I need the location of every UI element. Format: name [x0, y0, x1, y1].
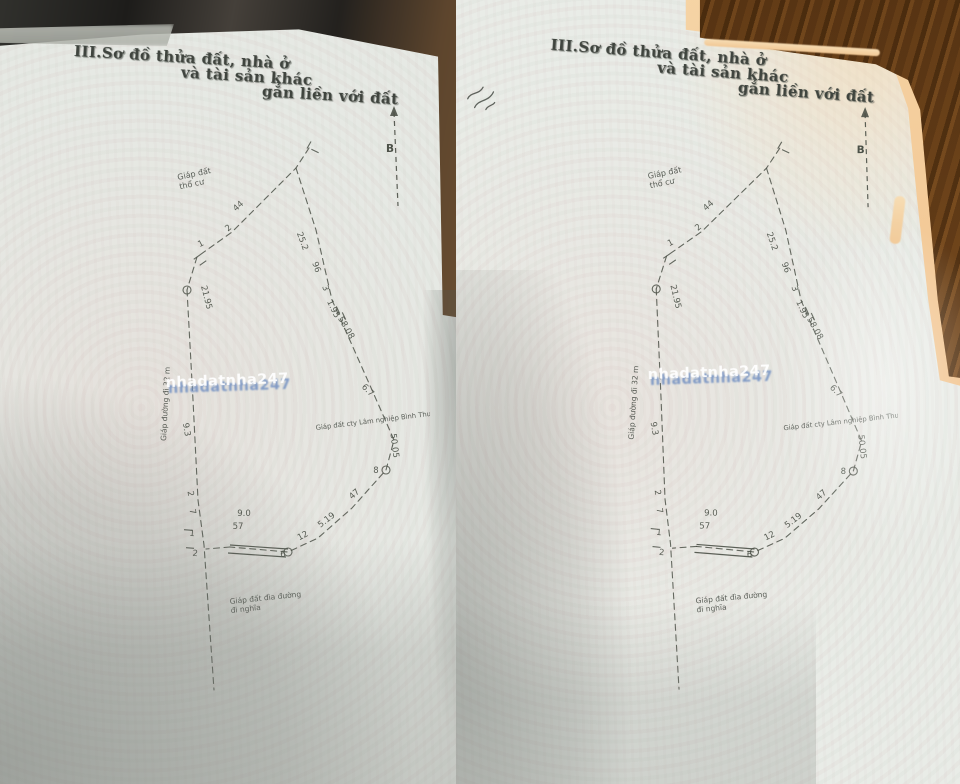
- dimension-label: 12: [296, 529, 310, 543]
- adjacent-land-label: Giáp đất đìa đườngđi nghĩa: [229, 590, 302, 615]
- dimension-label: 2: [693, 222, 704, 233]
- dimension-label: 2: [223, 223, 234, 234]
- parcel-boundary: [230, 168, 394, 552]
- dimension-label: 5.19: [783, 511, 804, 530]
- photo-right: III.Sơ đồ thửa đất, nhà ở và tài sản khá…: [456, 0, 960, 784]
- north-arrow-head: [390, 106, 398, 116]
- tick-mark: [778, 142, 782, 149]
- north-label: B: [857, 144, 865, 156]
- tick-mark: [782, 150, 789, 153]
- dimension-label: 6: [747, 550, 753, 560]
- parcel-boundary: [673, 546, 697, 548]
- dimension-label: 8: [373, 466, 378, 476]
- dimension-label: 25.2: [294, 231, 310, 252]
- dimension-label: 2: [185, 490, 196, 497]
- dimension-label: 6.7: [359, 382, 376, 399]
- tick-mark: [307, 142, 311, 149]
- dimension-label: 58.08: [804, 316, 825, 342]
- dimension-label: 96: [309, 261, 322, 275]
- dimension-label: 3: [788, 285, 799, 293]
- dimension-label: 50.05: [388, 433, 401, 458]
- dimension-label: 21.95: [198, 284, 214, 310]
- dimension-label: 1: [656, 528, 662, 538]
- dimension-label: 3: [319, 284, 330, 293]
- dimension-label: 25.2: [764, 231, 780, 252]
- dimension-label: 1: [189, 529, 195, 539]
- photo-left: III.Sơ đồ thửa đất, nhà ở và tài sản khá…: [0, 0, 456, 784]
- north-arrow-line: [394, 112, 398, 206]
- parcel-svg: B442121.959.3271225.29631.9558.086.750.0…: [605, 94, 901, 717]
- dimension-label: 7: [187, 508, 198, 515]
- dimension-label: 9.3: [180, 422, 192, 437]
- dimension-label: 1.95: [324, 298, 341, 319]
- dimension-label: 2: [652, 489, 663, 496]
- adjacent-land-label: Giáp đất cty Lâm nghiệp Bình Thuận: [315, 409, 430, 432]
- dimension-label: 9.0: [237, 509, 251, 519]
- adjacent-land-label: Giáp đấtthổ cư: [647, 164, 684, 190]
- measure-line: [230, 545, 288, 549]
- watermark: nhadatnha247 nhadatnha247: [165, 369, 346, 409]
- measure-line: [694, 552, 752, 557]
- measure-line: [697, 544, 755, 549]
- adjacent-land-label: Giáp đất đìa đườngđi nghĩa: [695, 590, 768, 615]
- adjacent-land-label: Giáp đấtthổ cư: [176, 165, 213, 191]
- parcel-boundary: [206, 547, 230, 549]
- measure-line: [228, 553, 286, 557]
- dimension-label: 44: [231, 199, 246, 214]
- dimension-label: 2: [658, 548, 664, 558]
- adjacent-land-label: Giáp đất cty Lâm nghiệp Bình Thuận: [783, 410, 901, 432]
- dimension-label: 5.19: [316, 511, 337, 531]
- dimension-label: 57: [699, 521, 710, 531]
- photo-collage: III.Sơ đồ thửa đất, nhà ở và tài sản khá…: [0, 0, 960, 784]
- dimension-label: 12: [763, 529, 777, 543]
- north-arrow-head: [861, 107, 869, 117]
- parcel-sketch: B442121.959.3271225.29631.9558.086.750.0…: [605, 94, 901, 717]
- parcel-boundary: [696, 167, 864, 553]
- dimension-label: 6: [280, 550, 285, 560]
- dimension-label: 9.0: [704, 508, 718, 518]
- north-arrow-line: [864, 113, 869, 207]
- adjacent-land-label: Giáp đường đi 32 m: [627, 365, 641, 440]
- dimension-label: 1.95: [793, 299, 810, 320]
- dimension-label: 8: [841, 467, 847, 477]
- north-label: B: [386, 143, 394, 155]
- dimension-label: 6.7: [827, 383, 844, 400]
- dimension-label: 2: [192, 549, 198, 559]
- watermark: nhadatnha247 nhadatnha247: [647, 361, 828, 401]
- dimension-label: 57: [233, 522, 244, 532]
- dimension-label: 7: [653, 507, 664, 514]
- dimension-label: 9.3: [648, 421, 660, 436]
- tick-mark: [200, 261, 207, 266]
- dimension-label: 21.95: [667, 284, 682, 310]
- tick-mark: [669, 260, 676, 265]
- dimension-label: 1: [196, 239, 205, 250]
- dimension-label: 44: [701, 199, 716, 214]
- dimension-label: 1: [666, 238, 675, 249]
- tick-mark: [311, 149, 318, 152]
- dimension-label: 58.08: [335, 315, 356, 341]
- dimension-label: 96: [779, 261, 792, 275]
